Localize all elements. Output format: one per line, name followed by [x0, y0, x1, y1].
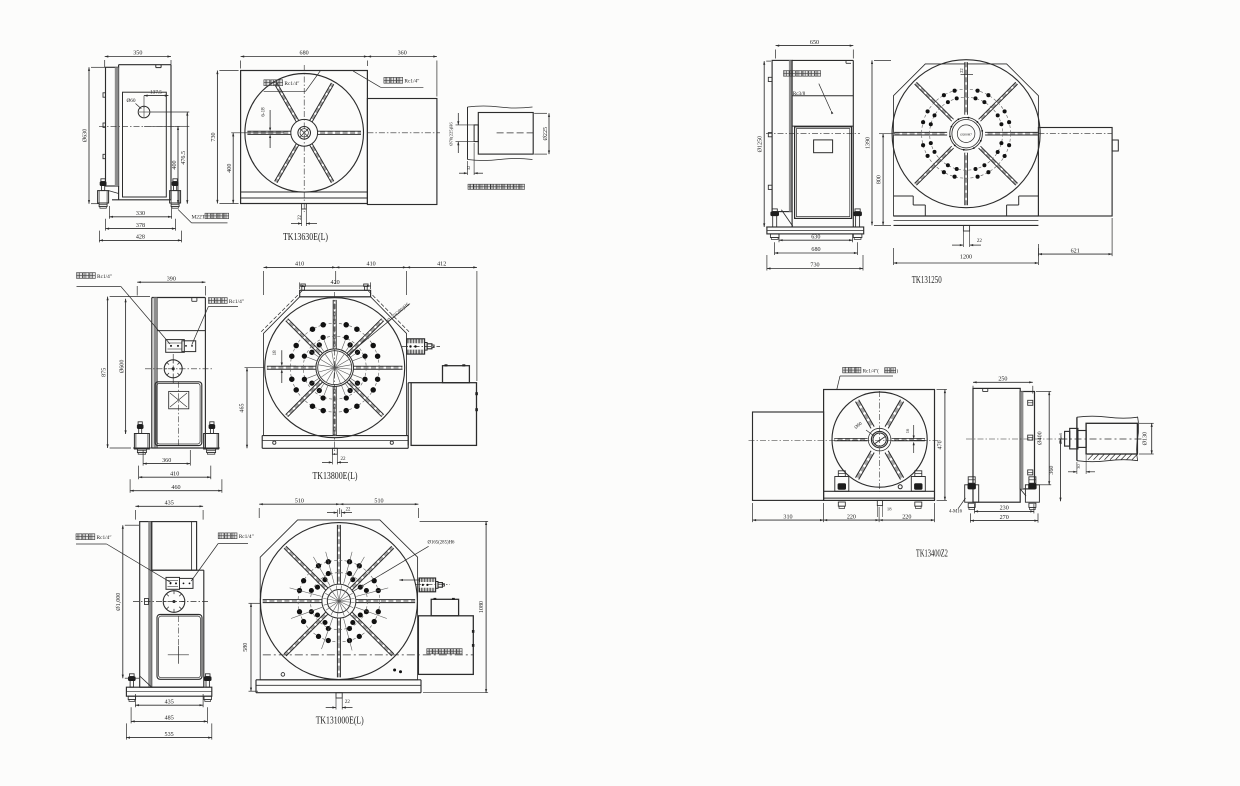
svg-text:310: 310: [783, 514, 792, 520]
svg-text:428: 428: [136, 235, 145, 241]
svg-text:630: 630: [811, 234, 820, 240]
svg-text:535: 535: [165, 732, 174, 738]
svg-text:800: 800: [877, 175, 883, 184]
svg-text:400: 400: [227, 164, 233, 173]
svg-text:510: 510: [374, 498, 383, 504]
svg-text:460: 460: [171, 485, 180, 491]
svg-text:250: 250: [998, 377, 1007, 383]
svg-text:TK13800E(L): TK13800E(L): [313, 471, 358, 482]
svg-text:18: 18: [887, 507, 892, 512]
svg-text:510: 510: [295, 498, 304, 504]
svg-text:22: 22: [345, 700, 351, 705]
svg-text:Rc1/4″: Rc1/4″: [97, 535, 112, 541]
svg-text:410: 410: [170, 471, 179, 477]
svg-text:): ): [896, 368, 898, 375]
svg-text:580: 580: [243, 643, 249, 652]
svg-text:22: 22: [341, 457, 347, 462]
svg-text:220: 220: [902, 514, 911, 520]
svg-text:470: 470: [938, 440, 944, 449]
svg-text:Rc1/4″(: Rc1/4″(: [863, 368, 880, 375]
svg-text:730: 730: [211, 132, 217, 141]
svg-text:476.5: 476.5: [181, 151, 187, 165]
svg-text:Rc3/8: Rc3/8: [793, 91, 806, 97]
svg-text:22: 22: [346, 508, 351, 513]
svg-text:Ø225: Ø225: [543, 127, 549, 141]
svg-text:230: 230: [1000, 506, 1009, 512]
svg-text:650: 650: [810, 40, 819, 46]
svg-text:410: 410: [295, 262, 304, 268]
svg-text:22: 22: [959, 68, 964, 73]
svg-text:32: 32: [466, 165, 471, 170]
svg-text:270: 270: [1000, 515, 1009, 521]
svg-text:22: 22: [977, 239, 983, 244]
svg-text:875: 875: [101, 368, 107, 377]
svg-text:680: 680: [811, 247, 820, 253]
svg-text:TK131250: TK131250: [912, 275, 942, 286]
svg-text:360: 360: [162, 458, 171, 464]
svg-text:360: 360: [1049, 466, 1055, 475]
svg-text:435: 435: [165, 699, 174, 705]
svg-text:Rc1/4″: Rc1/4″: [404, 79, 419, 85]
svg-text:621: 621: [1071, 248, 1080, 254]
svg-text:390: 390: [167, 276, 176, 282]
svg-text:1200: 1200: [960, 255, 972, 261]
svg-text:Ø630: Ø630: [83, 129, 89, 143]
svg-text:TK13400Z2: TK13400Z2: [916, 549, 948, 560]
svg-text:18: 18: [273, 350, 278, 356]
svg-text:Rc1/4″: Rc1/4″: [97, 274, 112, 280]
svg-text:Rc1/4″: Rc1/4″: [239, 534, 254, 540]
svg-text:22: 22: [298, 215, 303, 220]
svg-text:Ø70(225)H6: Ø70(225)H6: [448, 122, 453, 146]
svg-text:Ø400: Ø400: [1038, 431, 1044, 445]
svg-text:420: 420: [331, 280, 340, 286]
svg-text:Rc1/4″: Rc1/4″: [284, 81, 299, 87]
svg-text:465: 465: [240, 403, 246, 412]
svg-text:330: 330: [136, 211, 145, 217]
svg-text:730: 730: [810, 263, 819, 269]
svg-text:Ø130: Ø130: [1143, 432, 1149, 446]
svg-text:Rc1/4″: Rc1/4″: [229, 299, 244, 305]
svg-text:6-18: 6-18: [262, 107, 267, 117]
svg-text:M22T: M22T: [192, 215, 206, 221]
svg-text:410: 410: [367, 262, 376, 268]
svg-text:485: 485: [165, 716, 174, 722]
svg-text:360: 360: [398, 51, 407, 57]
svg-text:Ø1,000: Ø1,000: [116, 593, 122, 611]
svg-text:137.5: 137.5: [150, 90, 162, 96]
svg-text:4-M16: 4-M16: [949, 509, 963, 514]
svg-text:Ø200H7: Ø200H7: [960, 133, 972, 137]
svg-text:Ø55m6: Ø55m6: [1059, 433, 1063, 444]
svg-text:435: 435: [165, 501, 174, 507]
svg-text:400: 400: [172, 160, 178, 169]
svg-text:220: 220: [847, 514, 856, 520]
svg-text:Ø600: Ø600: [119, 360, 125, 374]
svg-text:412: 412: [437, 262, 446, 268]
svg-text:350: 350: [133, 51, 142, 57]
svg-text:Ø60: Ø60: [126, 98, 135, 104]
svg-text:1390: 1390: [865, 137, 871, 149]
svg-text:16: 16: [905, 428, 910, 433]
svg-text:680: 680: [300, 51, 309, 57]
svg-text:Ø165(285)H6: Ø165(285)H6: [428, 541, 456, 546]
svg-text:TK13630E(L): TK13630E(L): [283, 232, 328, 243]
svg-text:378: 378: [136, 223, 145, 229]
svg-text:Ø1250: Ø1250: [758, 136, 764, 153]
svg-text:1080: 1080: [479, 601, 485, 613]
svg-text:TK131000E(L): TK131000E(L): [316, 716, 364, 727]
